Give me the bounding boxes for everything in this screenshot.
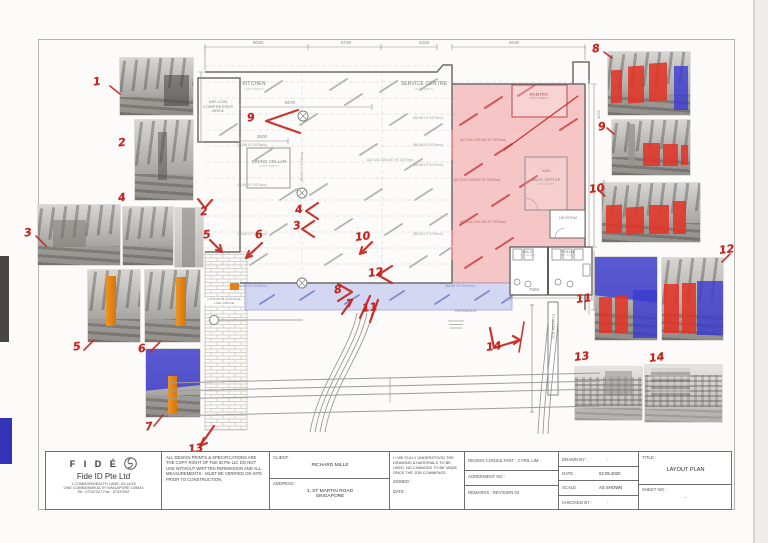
title-cell: TITLE : LAYOUT PLAN SHEET NO : - [638, 452, 732, 509]
agreement-no: AGREEMENT NO : [468, 474, 505, 479]
beam-height-note: (BEAM HT 3470mm) [222, 183, 282, 187]
red-panel-highlight [682, 283, 695, 334]
photo-texture [645, 409, 722, 422]
beam-height-note: (BEAM HT 3470mm) [398, 163, 458, 167]
client-label: CLIENT : [273, 455, 291, 460]
driveway-curves [310, 313, 558, 434]
blue-panel-highlight [674, 66, 689, 110]
drawing-title: LAYOUT PLAN [639, 467, 732, 473]
room-area: (XX SQFT) [511, 254, 545, 257]
photo-number-1: 1 [92, 75, 101, 89]
photo-number-14: 14 [648, 350, 665, 365]
ceiling-height-note: (ACTUAL CEILING HT 3070mm) [448, 138, 518, 142]
room-area: (XXX SQFT) [390, 88, 458, 92]
copyright-cell: ALL DESIGN PRINTS & SPECIFICATIONS ARE T… [161, 452, 269, 509]
divider [465, 485, 559, 486]
dim-3600: 3600 [242, 134, 282, 139]
photo-number-10: 10 [588, 181, 605, 196]
blue-panel-highlight [633, 290, 657, 338]
photo-number-12: 12 [718, 242, 735, 257]
red-panel-highlight [611, 69, 622, 103]
photo-detail [651, 368, 690, 395]
room-area: (XXX SQFT) [226, 88, 282, 92]
red-panel-highlight [626, 206, 644, 234]
photo-number-2: 2 [117, 136, 126, 150]
checked-by-value: - [607, 500, 608, 505]
pantry-room [512, 85, 567, 117]
photo-14 [645, 365, 722, 422]
room-label-pantry: PANTRY(XXX SQFT) [512, 92, 566, 101]
room-label-dining-cellar: DINING CELLAR(XXX SQFT) [248, 160, 290, 169]
page-margin-right [755, 0, 768, 543]
scan-artifact-dark [0, 256, 9, 342]
title-label: TITLE : [642, 455, 656, 460]
ceiling-height-note: (ACTUAL CEILING HT 3070mm) [355, 158, 425, 162]
beam-height-note: (BEAM HT 3470mm) [398, 143, 458, 147]
company-cell: F I D É Fide ID Pte Ltd 1 COMMONWEALTH L… [46, 452, 161, 509]
photo-number-4: 4 [117, 191, 126, 205]
photo-number-7: 7 [144, 420, 153, 434]
sheet-no-value: - [639, 496, 732, 501]
label-outdoor-signage: OUTDOOR SIGNAGE LINE ABOVE [204, 298, 244, 305]
ceiling-height-note: (ACTUAL CEILING HT 3070mm) [442, 178, 512, 182]
photo-detail [53, 220, 86, 247]
room-label-db-room: DB ROOM [550, 216, 586, 220]
photo-number-9: 9 [597, 120, 606, 134]
remarks: REMARKS : REVISION 02 [468, 490, 519, 495]
db-room [550, 210, 585, 238]
red-panel-highlight [681, 145, 689, 165]
photo-number-5: 5 [72, 340, 81, 354]
red-panel-highlight [664, 284, 679, 333]
address-label: ADDRESS : [273, 481, 296, 486]
red-panel-highlight [628, 65, 644, 103]
beam-height-note: (BEAM HT 3470mm) [222, 143, 282, 147]
divider [465, 470, 559, 471]
address-value: 1, ST MARTIN ROAD SINGAPORE [270, 489, 390, 499]
fide-swirl-logo-icon [124, 457, 137, 470]
dim-4425: 4425 [404, 40, 444, 45]
room-label-entrance: ENTRANCE [446, 309, 486, 313]
divider [559, 480, 639, 481]
blue-panel-highlight [697, 281, 723, 335]
scale-value: AS SHOWN [599, 485, 622, 490]
drawn-by-label: DRAWN BY : [562, 457, 587, 462]
scanned-layout-plan-sheet: { "nums": { "n1":"1","n2":"2","n3":"3","… [0, 0, 768, 543]
plan-ref-6: 6 [254, 228, 263, 242]
plan-ref-3: 3 [292, 219, 301, 233]
photo-number-8: 8 [591, 42, 600, 56]
plan-ref-4: 4 [294, 203, 303, 217]
room-area: (XXX SQFT) [512, 97, 566, 101]
plan-ref-7: 7 [345, 297, 354, 311]
plan-ref-14: 14 [485, 339, 502, 354]
company-phone: Tel : 67337227 Fax : 67337657 [46, 490, 161, 494]
photo-number-3: 3 [23, 226, 32, 240]
drawn-cell: DRAWN BY : - DATE : 02.09.2020 SCALE : A… [558, 452, 639, 509]
dim-3450: 3450 [524, 168, 568, 173]
client-cell: CLIENT : RICHARD MILLE ADDRESS : 1, ST M… [269, 452, 390, 509]
company-name: Fide ID Pte Ltd [46, 472, 161, 481]
room-label-aircon: AIR-CON COMPRESSER AREA [196, 100, 240, 114]
drawn-by-value: - [607, 457, 608, 462]
dim-7965: 7965 [512, 287, 556, 292]
photo-3 [38, 205, 120, 265]
red-panel-highlight [673, 201, 687, 234]
date-label: DATE : [393, 489, 461, 494]
room-label-back-office: BACK OFFICE(XXX SQFT) [524, 178, 568, 186]
divider [559, 495, 639, 496]
room-label-planter-box: PLANTER BOX [550, 307, 554, 347]
room-label-female: FEMALE(XX SQFT) [548, 250, 588, 257]
sheet-background: 8030 5700 4425 4630 6670 3600 7965 3450 … [0, 0, 754, 543]
design-consultant: DESIGN CONSULTANT : CYRIL LIM [468, 458, 539, 463]
title-block: F I D É Fide ID Pte Ltd 1 COMMONWEALTH L… [45, 451, 732, 510]
blue-beam-height-note: (BEAM HT 4000mm) [430, 284, 490, 288]
consultant-cell: DESIGN CONSULTANT : CYRIL LIM AGREEMENT … [464, 452, 559, 509]
dim-6670: 6670 [270, 100, 310, 105]
plan-ref-10: 10 [354, 229, 371, 244]
plan-ref-9: 9 [246, 111, 255, 125]
photo-5 [88, 270, 140, 342]
beam-height-note: (BEAM HT 3470mm) [398, 232, 458, 236]
orange-wall-marker [230, 283, 239, 290]
scan-artifact-blue [0, 418, 12, 464]
company-logo-text: F I D É [46, 457, 161, 470]
divider [559, 466, 639, 467]
dim-8030: 8030 [238, 40, 278, 45]
red-panel-highlight [663, 144, 677, 166]
plan-ref-2: 2 [199, 205, 208, 219]
plan-ref-11: 11 [361, 300, 378, 315]
room-label-service-centre: SERVICE CENTRE(XXX SQFT) [390, 82, 458, 92]
red-panel-highlight [643, 143, 660, 166]
client-value: RICHARD MILLE [270, 463, 390, 468]
room-area: (XXX SQFT) [524, 183, 568, 187]
photo-9 [612, 120, 690, 175]
photo-number-6: 6 [137, 342, 146, 356]
room-area: (XX SQFT) [548, 254, 588, 257]
photo-10 [602, 183, 700, 242]
checked-by-label: CHECKED BY : [562, 500, 592, 505]
beam-height-note: (BEAM HT 3470mm) [300, 137, 304, 197]
photo-detail [628, 124, 636, 165]
entrance-elements [210, 316, 465, 329]
photo-number-13: 13 [573, 349, 590, 364]
ceiling-height-note: (ACTUAL CEILING HT 3070mm) [448, 220, 518, 224]
photo-8 [608, 52, 690, 115]
photo-12 [662, 258, 723, 340]
beam-height-note: (BEAM HT 3470mm) [222, 232, 282, 236]
declaration-cell: I / WE FULLY UNDERSTOOD THE DRAWING & MA… [389, 452, 464, 509]
beam-height-note: (BEAM HT 3470mm) [398, 116, 458, 120]
dim-4630: 4630 [494, 40, 534, 45]
red-panel-highlight [649, 63, 667, 102]
plan-ref-12: 12 [367, 265, 384, 280]
photo-texture [38, 246, 120, 265]
divider [270, 478, 390, 479]
room-area: (XXX SQFT) [248, 165, 290, 169]
red-panel-highlight [615, 295, 629, 333]
declaration-text: I / WE FULLY UNDERSTOOD THE DRAWING & MA… [393, 455, 461, 475]
room-label-kitchen: KITCHEN(XXX SQFT) [226, 82, 282, 92]
dim-5700: 5700 [326, 40, 366, 45]
scale-label: SCALE : [562, 485, 578, 490]
logo-text: F I D É [70, 459, 119, 469]
date-value: 02.09.2020 [599, 471, 621, 476]
signed-label: SIGNED : [393, 479, 461, 484]
sheet-no-label: SHEET NO : [642, 487, 666, 492]
divider [639, 484, 732, 485]
hatched-wall-strip [205, 252, 247, 430]
photo-number-11: 11 [575, 291, 592, 306]
plan-ref-5: 5 [202, 228, 211, 242]
date2-label: DATE : [562, 471, 576, 476]
room-label-male: MALE(XX SQFT) [511, 250, 545, 257]
plan-ref-8: 8 [333, 283, 342, 297]
orange-column-highlight [106, 276, 116, 326]
red-panel-highlight [649, 205, 669, 233]
